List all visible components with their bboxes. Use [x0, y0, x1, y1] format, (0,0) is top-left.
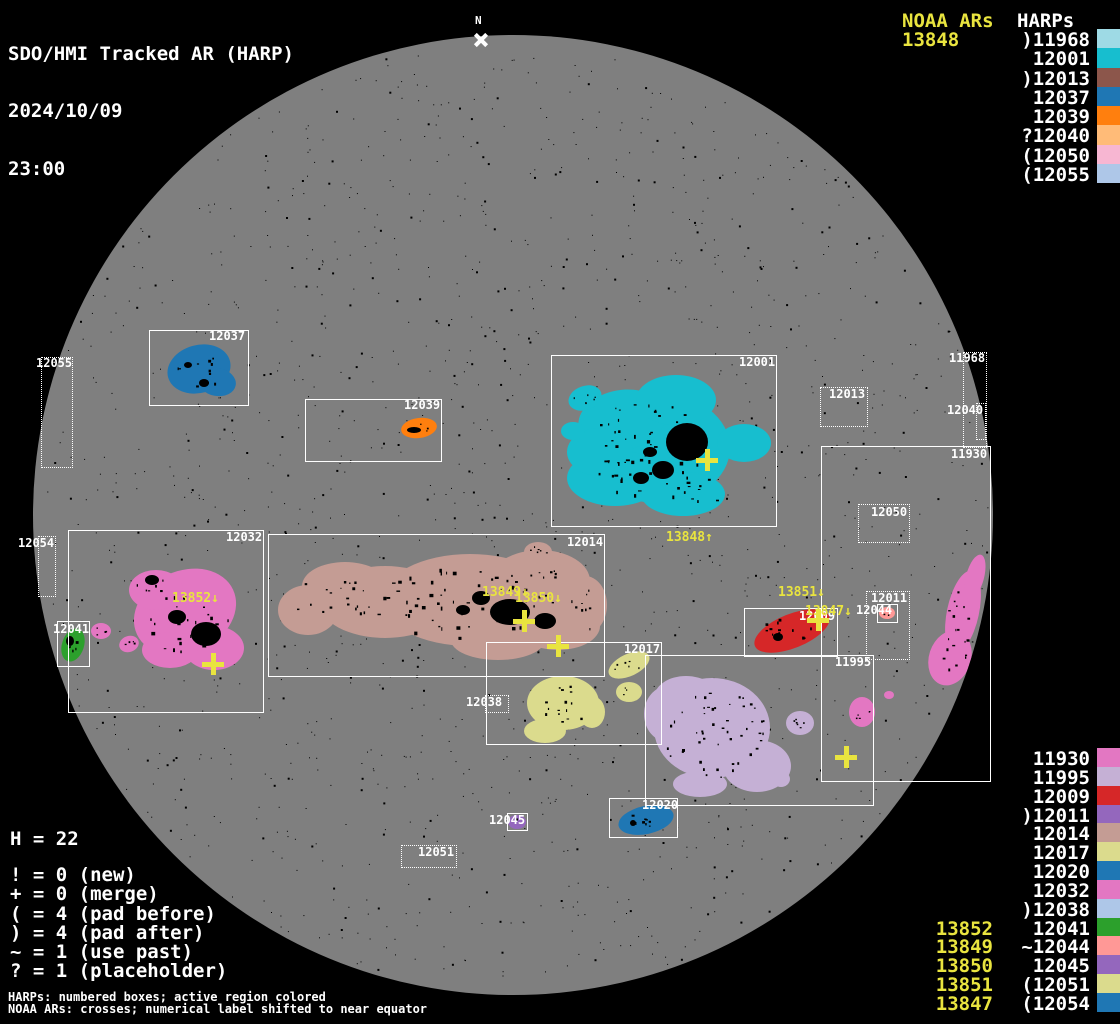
noaa-ar-number-label: 13847↓ — [805, 605, 852, 618]
harp-box-12055 — [41, 357, 73, 468]
legend-noaa-entry-empty — [930, 844, 993, 863]
legend-noaa-entry-empty — [930, 863, 993, 882]
harp-box-label-12017: 12017 — [624, 643, 660, 655]
harp-box-label-12001: 12001 — [739, 356, 775, 368]
harp-color-swatch-12038 — [1097, 899, 1120, 918]
prefix-legend-item-5: ? = 1 (placeholder) — [10, 962, 227, 981]
harp-box-label-11995: 11995 — [835, 656, 871, 668]
obs-time: 23:00 — [8, 160, 294, 179]
harp-color-swatch-12032 — [1097, 880, 1120, 899]
header: SDO/HMI Tracked AR (HARP) 2024/10/09 23:… — [8, 6, 294, 218]
legend-noaa-entry-empty — [930, 882, 993, 901]
harp-box-label-12040: 12040 — [947, 404, 983, 416]
legend-harp-entry-12055: (12055 — [1004, 166, 1090, 185]
legend-bottom-right-swatches — [1097, 748, 1120, 1012]
legend-noaa-entry-13847: 13847 — [930, 995, 993, 1014]
prefix-legend-item-1: + = 0 (merge) — [10, 885, 227, 904]
legend-harp-entry-12001: 12001 — [1004, 50, 1090, 69]
prefix-legend-item-2: ( = 4 (pad before) — [10, 905, 227, 924]
harp-box-label-12055: 12055 — [36, 357, 72, 369]
harp-color-swatch-11995 — [1097, 767, 1120, 786]
harp-color-swatch-12051 — [1097, 974, 1120, 993]
legend-top-right-harp-list: )1196812001)120131203712039?12040(12050(… — [1004, 31, 1090, 185]
noaa-number-top: 13848 — [902, 31, 959, 50]
legend-harp-entry-12054: (12054 — [1004, 995, 1090, 1014]
harp-box-label-12037: 12037 — [209, 330, 245, 342]
harp-color-swatch-12020 — [1097, 861, 1120, 880]
legend-bottom-right-noaa-list: 1385213849138501385113847 — [930, 750, 993, 1014]
harp-color-swatch-11968 — [1097, 29, 1120, 48]
legend-noaa-entry-empty — [930, 825, 993, 844]
harp-color-swatch-12014 — [1097, 823, 1120, 842]
harp-box-12017 — [486, 642, 662, 745]
harp-box-label-12045: 12045 — [489, 814, 525, 826]
harp-box-label-12013: 12013 — [829, 388, 865, 400]
harp-box-12001 — [551, 355, 777, 527]
harp-color-swatch-12044 — [1097, 936, 1120, 955]
north-label: N — [475, 15, 482, 26]
legend-bottom-right-harp-list: 119301199512009)120111201412017120201203… — [1004, 750, 1090, 1014]
harp-box-label-12041: 12041 — [53, 623, 89, 635]
harp-box-label-12054: 12054 — [18, 537, 54, 549]
harp-color-swatch-12040 — [1097, 125, 1120, 144]
page-title: SDO/HMI Tracked AR (HARP) — [8, 45, 294, 64]
harp-box-11995 — [645, 655, 874, 806]
noaa-ar-number-label: 13852↓ — [172, 592, 219, 605]
legend-noaa-entry-empty — [930, 901, 993, 920]
noaa-ar-cross — [513, 610, 535, 632]
harp-box-12032 — [68, 530, 264, 713]
harp-color-swatch-12037 — [1097, 87, 1120, 106]
harp-box-label-12039: 12039 — [404, 399, 440, 411]
legend-harp-entry-12032: 12032 — [1004, 882, 1090, 901]
harp-box-label-12014: 12014 — [567, 536, 603, 548]
harp-color-swatch-12039 — [1097, 106, 1120, 125]
harp-box-label-11968: 11968 — [949, 352, 985, 364]
harp-color-swatch-12013 — [1097, 68, 1120, 87]
legend-harp-entry-12013: )12013 — [1004, 70, 1090, 89]
harp-box-label-12032: 12032 — [226, 531, 262, 543]
noaa-ar-cross — [202, 653, 224, 675]
legend-noaa-entry-empty — [930, 750, 993, 769]
harp-color-swatch-12041 — [1097, 918, 1120, 937]
harp-box-label-12051: 12051 — [418, 846, 454, 858]
legend-noaa-entry-empty — [930, 788, 993, 807]
footer-note-noaa: NOAA ARs: crosses; numerical label shift… — [8, 1003, 427, 1015]
harp-color-swatch-11930 — [1097, 748, 1120, 767]
harp-count: H = 22 — [10, 830, 79, 849]
harp-color-swatch-12001 — [1097, 48, 1120, 67]
harp-color-swatch-12045 — [1097, 955, 1120, 974]
harp-color-swatch-12017 — [1097, 842, 1120, 861]
obs-date: 2024/10/09 — [8, 102, 294, 121]
legend-noaa-entry-empty — [930, 807, 993, 826]
legend-harp-entry-12009: 12009 — [1004, 788, 1090, 807]
harp-box-label-12020: 12020 — [642, 799, 678, 811]
noaa-ar-cross — [547, 635, 569, 657]
noaa-ar-cross — [696, 449, 718, 471]
noaa-ar-number-label: 13851↓ — [778, 586, 825, 599]
harp-color-swatch-12054 — [1097, 993, 1120, 1012]
harp-box-label-12044: 12044 — [856, 604, 892, 616]
harp-color-swatch-12009 — [1097, 786, 1120, 805]
harp-color-swatch-12011 — [1097, 805, 1120, 824]
legend-noaa-entry-empty — [930, 769, 993, 788]
noaa-ar-number-label: 13850↓ — [515, 592, 562, 605]
noaa-ar-cross — [835, 746, 857, 768]
harp-color-swatch-12055 — [1097, 164, 1120, 183]
legend-top-right-swatches — [1097, 29, 1120, 183]
legend-harp-entry-12040: ?12040 — [1004, 127, 1090, 146]
harp-box-label-12038: 12038 — [466, 696, 502, 708]
noaa-ar-number-label: 13848↑ — [666, 531, 713, 544]
prefix-legend-list: ! = 0 (new)+ = 0 (merge)( = 4 (pad befor… — [10, 866, 227, 982]
harp-color-swatch-12050 — [1097, 145, 1120, 164]
harp-box-label-11930: 11930 — [951, 448, 987, 460]
legend-harp-entry-12038: )12038 — [1004, 901, 1090, 920]
legend-harp-entry-11995: 11995 — [1004, 769, 1090, 788]
sdo-hmi-harp-image: 1203712055120391200112013119681204011930… — [0, 0, 1120, 1024]
harp-box-label-12050: 12050 — [871, 506, 907, 518]
